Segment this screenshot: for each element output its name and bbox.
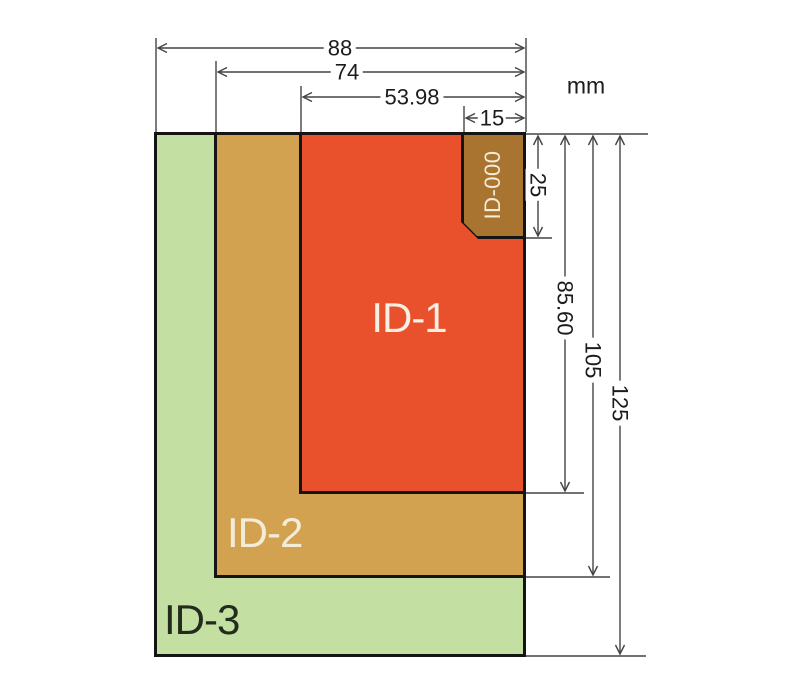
- unit-label: mm: [567, 73, 605, 100]
- card-label-id3: ID-3: [164, 599, 239, 641]
- dim-width-id000: 15: [478, 105, 506, 130]
- dim-width-id2: 74: [331, 59, 363, 84]
- dim-height-id3: 125: [607, 381, 632, 426]
- dim-height-id2: 105: [580, 338, 605, 383]
- card-label-id000: ID-000: [482, 150, 504, 219]
- dim-height-id000: 25: [525, 169, 550, 201]
- card-size-diagram: ID-1 ID-2 ID-3 ID-000 88 74 53.98 15 25 …: [0, 0, 800, 699]
- dim-width-id3: 88: [324, 35, 356, 60]
- card-label-id1: ID-1: [371, 297, 446, 339]
- dim-height-id1: 85.60: [552, 276, 577, 339]
- dim-width-id1: 53.98: [380, 84, 443, 109]
- card-label-id2: ID-2: [227, 512, 302, 554]
